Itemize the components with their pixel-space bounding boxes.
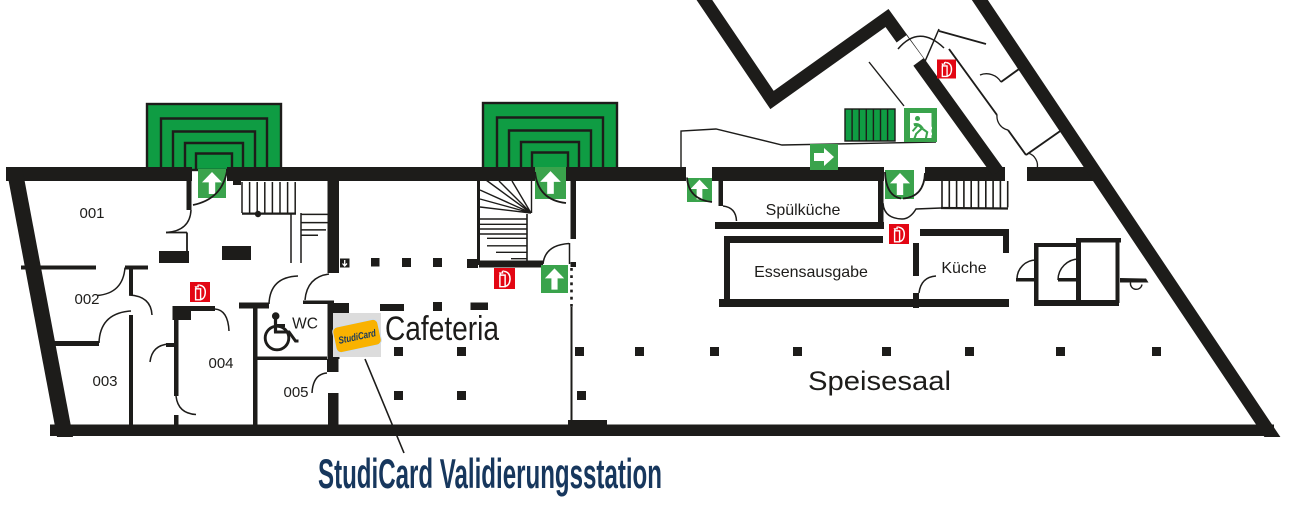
svg-text:Küche: Küche — [941, 260, 986, 277]
svg-text:Spülküche: Spülküche — [766, 202, 841, 219]
svg-text:001: 001 — [79, 205, 104, 222]
svg-text:005: 005 — [283, 384, 308, 401]
svg-text:Essensausgabe: Essensausgabe — [754, 264, 868, 281]
svg-text:Speisesaal: Speisesaal — [808, 366, 951, 396]
svg-text:WC: WC — [292, 316, 318, 333]
svg-text:004: 004 — [208, 355, 233, 372]
svg-text:StudiCard Validierungsstation: StudiCard Validierungsstation — [318, 450, 662, 497]
svg-text:Cafeteria: Cafeteria — [385, 310, 499, 348]
svg-text:002: 002 — [74, 291, 99, 308]
svg-text:003: 003 — [92, 373, 117, 390]
